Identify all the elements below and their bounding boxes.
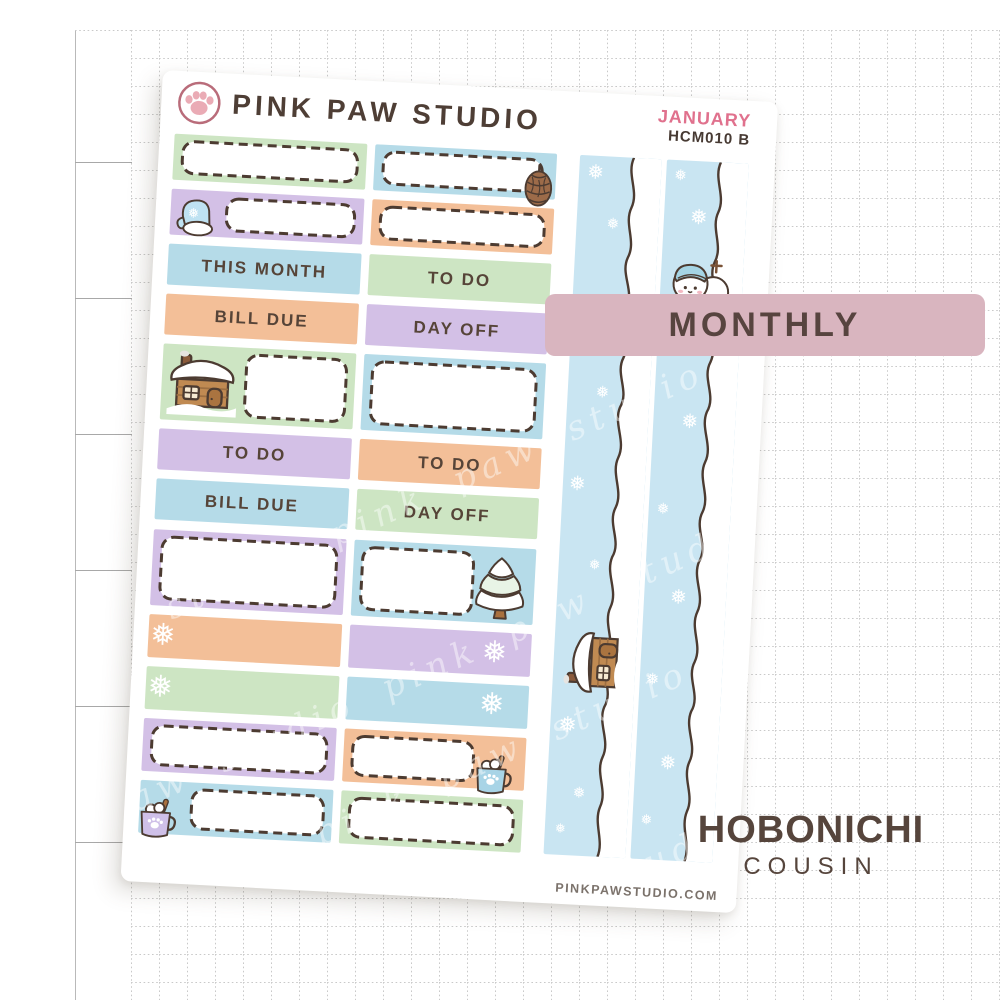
snowflake-icon: ❅ bbox=[689, 207, 708, 229]
snowflake-icon: ❅ bbox=[558, 715, 578, 738]
sticker-label-box bbox=[360, 354, 546, 439]
sticker-label-box bbox=[370, 199, 554, 254]
tree-icon bbox=[471, 553, 530, 622]
sticker-header-bill-due: BILL DUE bbox=[164, 294, 359, 345]
snowflake-icon: ❅ bbox=[587, 161, 605, 182]
sticker-column-right: TO DODAY OFFTO DODAY OFF❅❅ bbox=[339, 144, 557, 853]
cabin-icon bbox=[164, 348, 241, 419]
sticker-label-box-cocoa-purple bbox=[138, 780, 334, 843]
sticker-header-this-month: THIS MONTH bbox=[167, 244, 362, 295]
snowflake-icon: ❅ bbox=[656, 501, 669, 517]
snowflake-icon: ❅ bbox=[147, 672, 174, 703]
snowflake-icon: ❅ bbox=[674, 168, 687, 184]
snowflake-icon: ❅ bbox=[606, 216, 619, 232]
mitten-icon: ❅ bbox=[171, 193, 221, 240]
paw-logo-icon bbox=[176, 80, 222, 126]
snowflake-icon: ❅ bbox=[640, 813, 652, 828]
snowflake-icon: ❅ bbox=[568, 473, 586, 494]
write-in-area bbox=[244, 355, 347, 422]
monthly-banner: MONTHLY bbox=[545, 294, 985, 356]
snowflake-icon: ❅ bbox=[481, 638, 508, 669]
snowflake-icon: ❅ bbox=[588, 558, 600, 573]
product-name: HOBONICHI COUSIN bbox=[690, 810, 932, 881]
sticker-header-label: BILL DUE bbox=[154, 479, 349, 530]
sticker-header-label: TO DO bbox=[358, 439, 542, 489]
write-in-area bbox=[360, 547, 474, 615]
write-in-area bbox=[370, 362, 537, 432]
sheet-header: PINK PAW STUDIO bbox=[176, 80, 543, 143]
brand-name: PINK PAW STUDIO bbox=[231, 89, 542, 137]
cabin-icon bbox=[561, 626, 628, 699]
sheet-meta: JANUARY HCM010 B bbox=[656, 106, 751, 149]
write-in-area bbox=[379, 207, 544, 248]
write-in-area bbox=[151, 725, 328, 773]
write-in-area bbox=[348, 798, 514, 846]
snowflake-icon: ❅ bbox=[659, 752, 677, 773]
sticker-header-label: TO DO bbox=[367, 254, 551, 304]
sticker-header-label: TO DO bbox=[157, 429, 352, 480]
sticker-header-day-off: DAY OFF bbox=[365, 304, 549, 354]
sticker-snowflake-box: ❅ bbox=[345, 676, 529, 728]
sticker-header-label: DAY OFF bbox=[355, 489, 539, 539]
sticker-content: ❅THIS MONTHBILL DUETO DOBILL DUE❅❅ TO DO… bbox=[138, 134, 749, 863]
write-in-area bbox=[351, 736, 474, 781]
snowflake-icon: ❅ bbox=[478, 690, 505, 721]
sticker-header-to-do: TO DO bbox=[358, 439, 542, 489]
cocoa-purple-icon bbox=[134, 796, 182, 841]
svg-text:❅: ❅ bbox=[187, 206, 199, 222]
sticker-label-box-mitten: ❅ bbox=[169, 189, 364, 245]
sticker-header-to-do: TO DO bbox=[157, 429, 352, 480]
washi-strips: ❅❅❅❅❅❅❅❅❅❅❅❅❅❅❅❅❅❅ bbox=[543, 155, 748, 863]
snowflake-icon: ❅ bbox=[670, 586, 688, 607]
write-in-area bbox=[190, 789, 324, 835]
snowflake-icon: ❅ bbox=[595, 384, 609, 401]
write-in-area bbox=[226, 199, 355, 238]
product-mockup-page: PINK PAW STUDIO JANUARY HCM010 B ❅THIS M… bbox=[0, 0, 1000, 1000]
write-in-area bbox=[182, 141, 358, 182]
product-subtitle: COUSIN bbox=[690, 853, 932, 881]
pinecone-icon bbox=[518, 163, 558, 209]
sticker-label-box bbox=[339, 790, 524, 852]
sticker-label-box-tree bbox=[351, 539, 537, 624]
sticker-label-box bbox=[150, 529, 347, 615]
cocoa-blue-icon bbox=[469, 754, 517, 799]
sticker-snowflake-box: ❅ bbox=[147, 614, 342, 667]
sticker-label-box-pinecone bbox=[373, 144, 557, 199]
sticker-header-bill-due: BILL DUE bbox=[154, 479, 349, 530]
sticker-sheet: PINK PAW STUDIO JANUARY HCM010 B ❅THIS M… bbox=[121, 70, 779, 913]
sticker-column-left: ❅THIS MONTHBILL DUETO DOBILL DUE❅❅ bbox=[138, 134, 367, 843]
sticker-label-box-cocoa-blue bbox=[342, 728, 527, 790]
sticker-label-box bbox=[141, 718, 337, 781]
sticker-header-label: BILL DUE bbox=[164, 294, 359, 345]
snowflake-icon: ❅ bbox=[645, 671, 659, 688]
sticker-snowflake-box: ❅ bbox=[348, 624, 532, 676]
sticker-header-label: DAY OFF bbox=[365, 304, 549, 354]
snowflake-icon: ❅ bbox=[150, 620, 177, 651]
sticker-label-box bbox=[172, 134, 367, 190]
sticker-snowflake-box: ❅ bbox=[145, 666, 340, 719]
snowflake-icon: ❅ bbox=[572, 785, 585, 801]
product-title: HOBONICHI bbox=[690, 810, 932, 852]
sticker-label-box-cabin bbox=[160, 344, 357, 430]
write-in-area bbox=[159, 536, 337, 607]
snowflake-icon: ❅ bbox=[554, 823, 566, 837]
sticker-header-day-off: DAY OFF bbox=[355, 489, 539, 539]
snowflake-icon: ❅ bbox=[681, 411, 699, 432]
sticker-header-label: THIS MONTH bbox=[167, 244, 362, 295]
sticker-header-to-do: TO DO bbox=[367, 254, 551, 304]
